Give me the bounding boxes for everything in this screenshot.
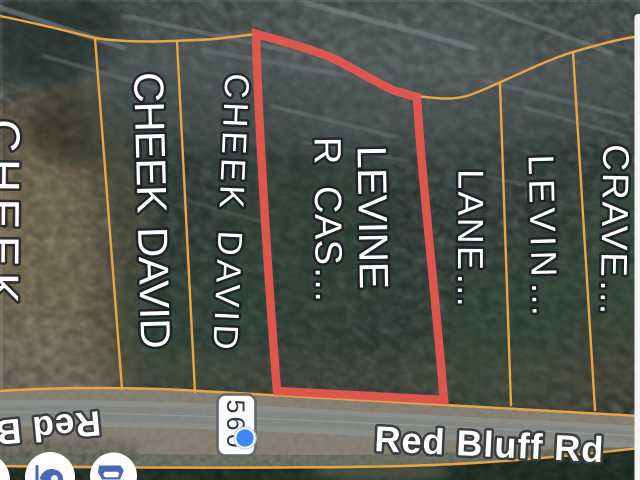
svg-text:LEVINE: LEVINE — [349, 145, 397, 289]
svg-text:CHEEK DAVID: CHEEK DAVID — [125, 72, 179, 349]
svg-text:CRAVE…: CRAVE… — [592, 144, 636, 318]
svg-text:LANE…: LANE… — [450, 169, 492, 311]
svg-text:CHEEK: CHEEK — [0, 119, 30, 310]
svg-text:LEVIN…: LEVIN… — [521, 154, 566, 322]
svg-text:R CAS…: R CAS… — [306, 137, 349, 305]
